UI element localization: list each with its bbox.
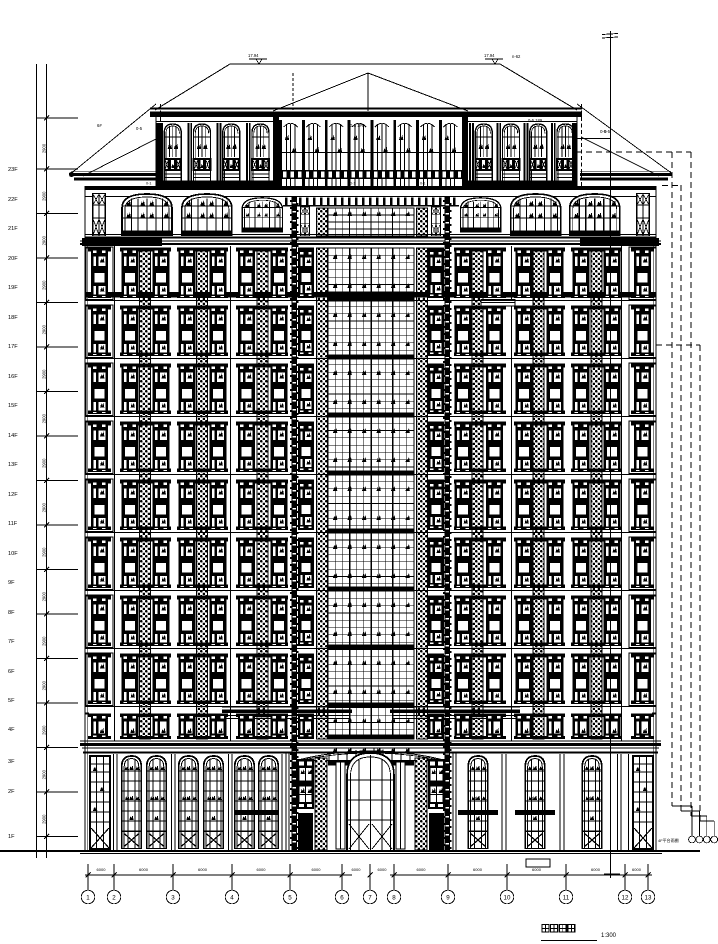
svg-text:5F: 5F [8,698,15,704]
svg-text:6000: 6000 [139,867,149,872]
svg-text:6000: 6000 [97,867,107,872]
svg-text:2900: 2900 [42,143,47,153]
svg-text:17F: 17F [8,344,18,350]
svg-text:7: 7 [368,895,372,902]
svg-text:2F: 2F [8,789,15,795]
svg-text:2900: 2900 [42,591,47,601]
svg-text:6000: 6000 [417,867,427,872]
svg-text:0-1: 0-1 [560,182,566,186]
svg-text:13: 13 [645,895,652,902]
svg-text:19F: 19F [8,285,18,291]
svg-text:2900: 2900 [42,369,47,379]
svg-text:4: 4 [230,895,234,902]
svg-text:18F: 18F [8,315,18,321]
svg-text:2900: 2900 [42,547,47,557]
svg-text:10F: 10F [8,551,18,557]
svg-text:2900: 2900 [42,769,47,779]
svg-text:6000: 6000 [532,867,542,872]
svg-text:9F: 9F [8,580,15,586]
svg-text:12F: 12F [8,492,18,498]
svg-text:0-1: 0-1 [194,182,200,186]
svg-text:6000: 6000 [473,867,483,872]
svg-text:6#: 6# [97,123,102,128]
svg-text:0-1: 0-1 [350,182,356,186]
svg-text:6000: 6000 [378,867,388,872]
svg-text:0-5: 0-5 [600,129,607,134]
svg-text:2900: 2900 [42,191,47,201]
svg-text:0-1: 0-1 [420,182,426,186]
svg-text:2900: 2900 [42,814,47,824]
svg-text:2900: 2900 [42,324,47,334]
svg-text:2900: 2900 [42,725,47,735]
svg-text:4F平台雨棚: 4F平台雨棚 [658,837,679,843]
svg-text:21F: 21F [8,226,18,232]
svg-text:17.94: 17.94 [248,53,259,58]
svg-text:15F: 15F [8,403,18,409]
svg-text:12: 12 [622,895,629,902]
svg-text:1: 1 [86,895,90,902]
svg-text:2900: 2900 [42,680,47,690]
svg-text:2900: 2900 [42,636,47,646]
svg-text:0-1: 0-1 [490,182,496,186]
svg-text:23F: 23F [8,167,18,173]
svg-text:2900: 2900 [42,458,47,468]
svg-text:n-62: n-62 [512,54,521,59]
svg-text:6000: 6000 [257,867,267,872]
svg-text:8: 8 [392,895,396,902]
svg-text:2: 2 [112,895,116,902]
svg-text:0-1: 0-1 [226,182,232,186]
svg-text:6F: 6F [8,669,15,675]
svg-text:0-5 1#9: 0-5 1#9 [350,123,365,128]
svg-text:20F: 20F [8,256,18,262]
svg-text:17.94: 17.94 [484,53,495,58]
svg-text:2900: 2900 [42,280,47,290]
svg-text:1:300: 1:300 [601,933,617,939]
svg-text:3: 3 [171,895,175,902]
svg-text:7F: 7F [8,639,15,645]
svg-text:6: 6 [340,895,344,902]
svg-text:13F: 13F [8,462,18,468]
svg-text:6000: 6000 [198,867,208,872]
svg-text:0-1: 0-1 [146,182,152,186]
svg-text:2900: 2900 [42,235,47,245]
svg-text:6000: 6000 [312,867,322,872]
svg-text:10: 10 [504,895,511,902]
svg-text:11: 11 [563,895,570,902]
svg-text:0-5 1#9: 0-5 1#9 [528,118,543,123]
svg-text:4F: 4F [8,727,15,733]
svg-text:6000: 6000 [591,867,601,872]
svg-text:16F: 16F [8,374,18,380]
svg-text:14F: 14F [8,433,18,439]
svg-text:5: 5 [288,895,292,902]
svg-text:8F: 8F [8,610,15,616]
svg-text:2900: 2900 [42,413,47,423]
svg-text:3F: 3F [8,759,15,765]
svg-text:1F: 1F [8,834,15,840]
svg-text:6000: 6000 [632,867,642,872]
svg-text:11F: 11F [8,521,18,527]
svg-text:0-5: 0-5 [136,126,143,131]
svg-text:2900: 2900 [42,502,47,512]
svg-text:6000: 6000 [352,867,362,872]
svg-text:22F: 22F [8,197,18,203]
svg-text:9: 9 [446,895,450,902]
